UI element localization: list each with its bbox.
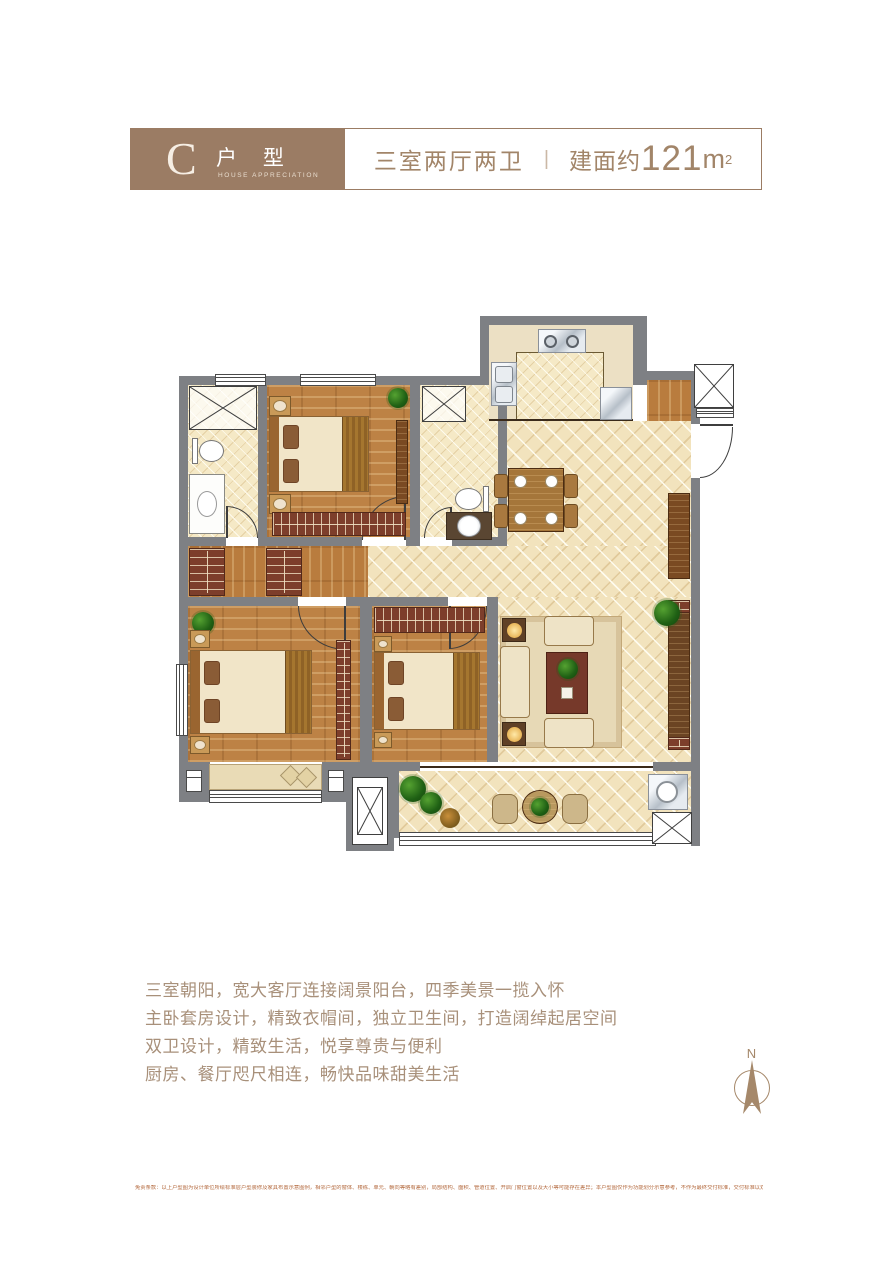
bay-block-left-inset: [186, 770, 202, 792]
type-badge: C 户 型 HOUSE APPRECIATION: [130, 128, 344, 190]
master-nightstand-1: [269, 396, 291, 416]
wall-bottom-c: [396, 762, 420, 771]
bedroom2-nightstand-1: [190, 630, 210, 648]
wall-h1-a: [188, 537, 226, 546]
armchair-bottom: [544, 718, 594, 748]
wall-corridor-a: [188, 597, 298, 606]
fridge: [600, 387, 632, 420]
selling-point-3: 双卫设计，精致生活，悦享尊贵与便利: [145, 1038, 618, 1055]
wall-bottom-b: [350, 762, 396, 771]
closet-wardrobe-2: [266, 548, 302, 596]
wall-right-balcony: [691, 770, 700, 846]
balcony-threshold: [420, 766, 653, 768]
bedroom3-closet: [374, 607, 485, 633]
master-bed: [269, 416, 369, 492]
stair-shaft: [352, 777, 388, 845]
bedroom3-bed: [374, 652, 480, 730]
washing-machine: [648, 774, 688, 810]
selling-point-2: 主卧套房设计，精致衣帽间，独立卫生间，打造阔绰起居空间: [145, 1010, 618, 1027]
north-compass: N: [728, 1046, 776, 1122]
bay-block-right-inset: [328, 770, 344, 792]
divider-bar: |: [544, 148, 549, 171]
master-wardrobe: [272, 512, 406, 536]
area-prefix: 建面约: [569, 142, 641, 176]
entry-floor: [647, 380, 691, 423]
disclaimer-text: 免责条款：以上户型图为设计单位所绘标准层户型装修及家具布置示意图例，相邻户型的窗…: [135, 1185, 763, 1192]
selling-point-4: 厨房、餐厅咫尺相连，畅快品味甜美生活: [145, 1066, 618, 1083]
living-plant-ne: [654, 600, 680, 626]
kitchen-sink: [491, 362, 517, 406]
balcony-chair-right: [562, 794, 588, 824]
window-bedroom2-left: [176, 664, 188, 736]
bedroom3-nightstand-2: [374, 732, 392, 748]
dining-chair-2: [494, 504, 508, 528]
bedroom2-tv-unit: [336, 640, 351, 760]
stove: [538, 329, 586, 353]
balcony-chair-left: [492, 794, 518, 824]
window-entry-side: [696, 408, 734, 418]
equipment-platform: [652, 812, 692, 844]
hall-floor: [368, 546, 691, 597]
wall-kitchen-top: [480, 316, 641, 325]
area-unit: m: [702, 144, 725, 175]
bedroom2-nightstand-2: [190, 736, 210, 754]
armchair-top: [544, 616, 594, 646]
shower-area-bath2: [422, 386, 466, 422]
wall-bottom-d: [653, 762, 700, 771]
bedroom2-bed: [190, 650, 312, 734]
balcony-plant-3: [440, 808, 460, 828]
master-plant: [388, 388, 408, 408]
selling-points: 三室朝阳，宽大客厅连接阔景阳台，四季美景一揽入怀 主卧套房设计，精致衣帽间，独立…: [145, 982, 618, 1094]
stair-shaft-core: [357, 787, 383, 835]
ac-platform: [694, 364, 734, 408]
layout-text: 三室两厅两卫: [374, 142, 524, 176]
dining-chair-1: [494, 474, 508, 498]
window-bath1: [215, 374, 266, 386]
area-superscript: 2: [725, 152, 732, 167]
window-master: [300, 374, 376, 386]
table-tray: [561, 687, 573, 699]
bay-window-glass: [209, 790, 322, 803]
toilet-bath2: [455, 486, 489, 512]
master-nightstand-2: [269, 494, 291, 514]
closet-wardrobe-1: [189, 548, 225, 596]
vanity-bath1: [189, 474, 225, 534]
table-plant: [558, 659, 578, 679]
balcony-plant-2: [420, 792, 442, 814]
bath1-door-leaf: [226, 506, 228, 538]
bedroom3-nightstand-1: [374, 636, 392, 652]
coffee-table: [546, 652, 588, 714]
dining-chair-3: [564, 474, 578, 498]
spec-banner: 三室两厅两卫 | 建面约 121 m 2: [344, 128, 762, 190]
wall-bed3-living: [487, 597, 498, 762]
shower-area-bath1: [189, 386, 257, 430]
balcony-table: [522, 790, 558, 824]
type-label: 户 型: [216, 142, 294, 172]
dining-chair-4: [564, 504, 578, 528]
wall-bed2-bed3: [360, 597, 372, 762]
floor-lamp-top: [502, 618, 526, 642]
entry-door-arc: [700, 427, 733, 478]
balcony-table-plant: [531, 798, 549, 816]
wall-right-lower: [691, 478, 700, 770]
dining-table: [508, 468, 564, 532]
bath1-door-arc: [226, 506, 258, 538]
type-letter: C: [166, 132, 197, 186]
entry-door-leaf: [700, 424, 733, 426]
tv-cabinet-cap-bottom: [668, 737, 690, 750]
sofa-main: [500, 646, 530, 718]
north-label: N: [728, 1046, 776, 1061]
basin-bath2: [446, 512, 492, 540]
sideboard: [668, 493, 690, 579]
floor-lamp-bottom: [502, 722, 526, 746]
floor-plan-page: C 户 型 HOUSE APPRECIATION 三室两厅两卫 | 建面约 12…: [0, 0, 889, 1278]
area-number: 121: [641, 139, 702, 179]
wall-kitchen-left: [480, 316, 489, 385]
type-subtitle: HOUSE APPRECIATION: [218, 172, 319, 179]
kitchen-island-tile: [516, 352, 604, 421]
master-desk: [396, 420, 408, 504]
window-balcony: [399, 832, 656, 846]
toilet-bath1: [192, 438, 224, 464]
wall-master-right: [410, 385, 420, 546]
wall-h1-b: [258, 537, 362, 546]
selling-point-1: 三室朝阳，宽大客厅连接阔景阳台，四季美景一揽入怀: [145, 982, 618, 999]
wall-bath1-right: [258, 385, 267, 537]
